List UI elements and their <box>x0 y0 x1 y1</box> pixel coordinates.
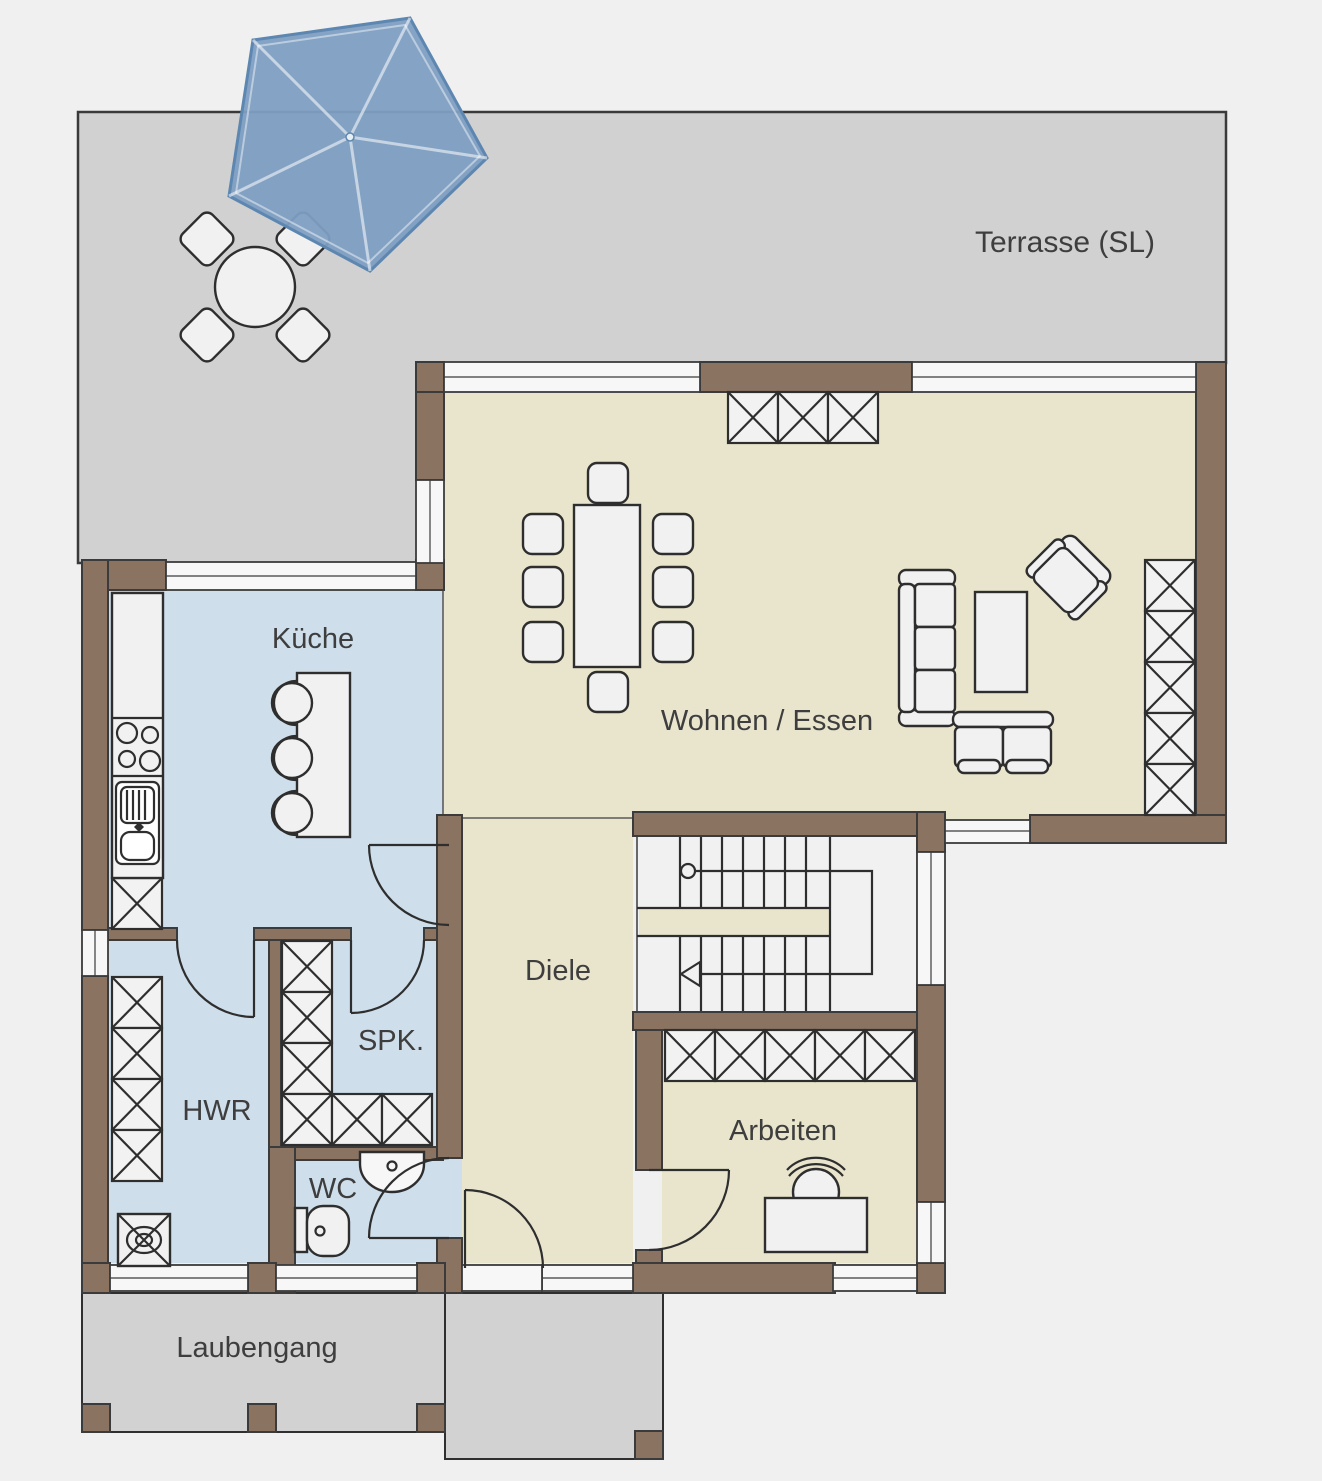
room-label-kueche: Küche <box>272 623 354 655</box>
wall <box>437 815 462 1158</box>
pillar <box>248 1404 276 1432</box>
room-label-laubengang: Laubengang <box>176 1332 337 1364</box>
pillar <box>82 1404 110 1432</box>
wall <box>700 362 912 392</box>
window <box>110 1265 248 1291</box>
wall <box>636 1030 662 1170</box>
desk <box>765 1198 867 1252</box>
wall <box>917 812 945 852</box>
wall <box>633 812 945 836</box>
wall <box>82 560 108 930</box>
room-label-arbeiten: Arbeiten <box>729 1115 837 1147</box>
front-door-threshold <box>462 1265 542 1291</box>
arbeiten-cabinet-row <box>665 1030 915 1081</box>
room-label-hwr: HWR <box>182 1095 251 1127</box>
toilet <box>295 1206 349 1256</box>
wall <box>1030 815 1226 843</box>
kitchen-island <box>272 673 350 837</box>
dining-chair <box>653 567 693 607</box>
wohnen-sideboard <box>728 392 878 443</box>
window <box>166 562 416 590</box>
dining-chair <box>653 514 693 554</box>
hwr-cabinet <box>112 977 162 1181</box>
wall <box>1196 362 1226 843</box>
floorplan-drawing: Terrasse (SL) Küche Wohnen / Essen Diele… <box>0 0 1322 1476</box>
sofa-two-seat <box>953 712 1053 773</box>
room-label-wohnen: Wohnen / Essen <box>661 705 873 737</box>
spk-cabinet-horizontal <box>282 1094 432 1145</box>
spk-cabinet-vertical <box>282 941 332 1094</box>
wc-door-opening <box>437 1158 462 1238</box>
staircase <box>637 836 917 1012</box>
room-label-wc: WC <box>309 1173 357 1205</box>
wall <box>917 1263 945 1293</box>
wall <box>254 928 351 940</box>
window <box>917 1202 945 1263</box>
wall <box>269 940 281 1147</box>
entrance-porch-slab <box>445 1293 663 1459</box>
kueche-tall-cabinet-x <box>112 878 162 929</box>
wall <box>917 985 945 1202</box>
terrace-door-sill <box>945 820 1030 843</box>
window <box>917 852 945 985</box>
floorplan-page: Terrasse (SL) Küche Wohnen / Essen Diele… <box>0 0 1322 1476</box>
window <box>416 480 444 563</box>
room-label-terrasse: Terrasse (SL) <box>975 226 1155 259</box>
window <box>912 362 1196 392</box>
window <box>542 1265 633 1291</box>
window <box>833 1265 917 1291</box>
room-diele <box>462 810 633 1263</box>
dining-chair <box>653 622 693 662</box>
kitchen-counter <box>112 593 163 878</box>
washing-machine <box>118 1214 170 1266</box>
sofa-three-seat <box>899 570 955 726</box>
terrace-round-table <box>215 247 295 327</box>
wall <box>633 1012 945 1030</box>
wall <box>416 560 444 590</box>
pillar <box>82 1263 110 1293</box>
pillar <box>635 1431 663 1459</box>
pillar <box>248 1263 276 1293</box>
window <box>82 930 108 976</box>
wall <box>416 392 444 480</box>
pillar <box>417 1263 445 1293</box>
wall <box>633 1263 835 1293</box>
wohnen-wall-cabinet <box>1145 560 1195 815</box>
wall <box>82 976 108 1293</box>
window <box>276 1265 417 1291</box>
room-label-spk: SPK. <box>358 1025 424 1057</box>
dining-chair <box>588 463 628 503</box>
dining-chair <box>523 567 563 607</box>
room-label-diele: Diele <box>525 955 591 987</box>
umbrella-pole <box>346 133 354 141</box>
window <box>444 362 700 392</box>
dining-table <box>574 505 640 667</box>
pillar <box>417 1404 445 1432</box>
wall <box>416 362 444 392</box>
kitchen-sink <box>116 782 159 864</box>
dining-chair <box>523 622 563 662</box>
dining-chair <box>523 514 563 554</box>
coffee-table <box>975 592 1027 692</box>
dining-chair <box>588 672 628 712</box>
